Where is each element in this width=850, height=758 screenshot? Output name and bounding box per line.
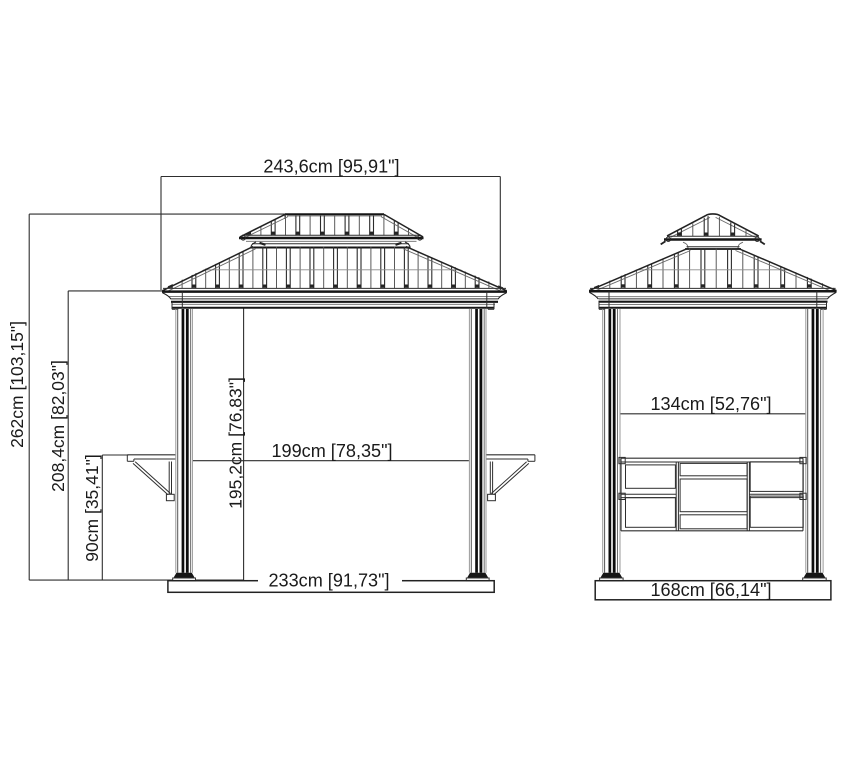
svg-text:262cm [103,15"]: 262cm [103,15"] — [7, 321, 27, 448]
svg-text:243,6cm [95,91"]: 243,6cm [95,91"] — [263, 157, 399, 177]
svg-text:208,4cm [82,03"]: 208,4cm [82,03"] — [48, 360, 68, 492]
svg-text:168cm [66,14"]: 168cm [66,14"] — [650, 580, 771, 600]
svg-text:90cm [35,41"]: 90cm [35,41"] — [82, 454, 102, 561]
svg-text:233cm [91,73"]: 233cm [91,73"] — [268, 571, 389, 591]
svg-text:199cm [78,35"]: 199cm [78,35"] — [271, 441, 392, 461]
svg-text:195,2cm [76,83"]: 195,2cm [76,83"] — [226, 377, 246, 509]
svg-text:134cm [52,76"]: 134cm [52,76"] — [650, 394, 771, 414]
